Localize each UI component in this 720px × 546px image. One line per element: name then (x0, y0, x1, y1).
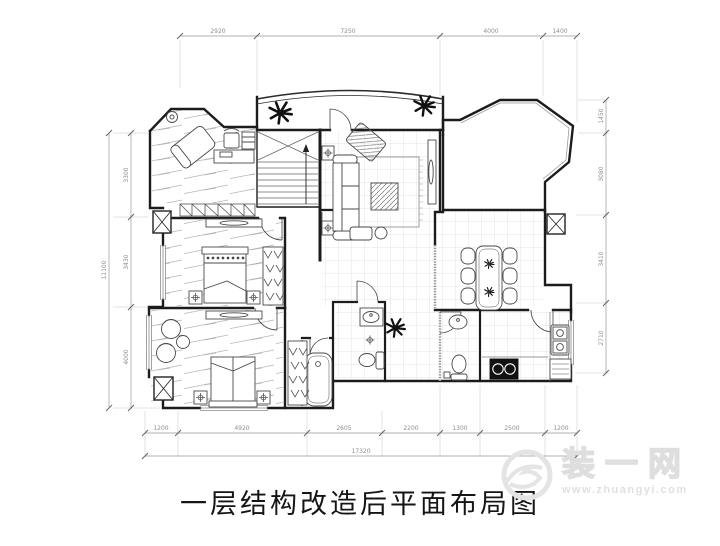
desk-chair (224, 133, 239, 148)
staircase (258, 132, 318, 204)
toilet (451, 355, 467, 380)
ottoman (350, 227, 372, 240)
entry-door (330, 109, 351, 130)
bathtub (305, 353, 332, 406)
watermark-brand: 装一网 (562, 446, 691, 482)
column-icon (154, 377, 173, 400)
plant-icon (414, 96, 434, 115)
sink (363, 312, 379, 323)
pouf (375, 227, 387, 239)
wardrobe (263, 247, 283, 305)
sink (449, 315, 467, 329)
double-sink (551, 325, 569, 355)
tv-shelf (206, 219, 262, 227)
bed (202, 247, 248, 303)
bed (209, 357, 257, 407)
floor-drain (444, 372, 450, 378)
watermark: 装一网 www.zhuangyi.com (498, 446, 713, 521)
stove (490, 359, 518, 379)
plan-title: 一层结构改造后平面布局图 (180, 482, 540, 521)
column-icon (547, 214, 565, 234)
dining-table (476, 246, 502, 310)
dim-top: 2920 7250 4000 1400 (177, 28, 580, 39)
dim-right: 1450 3080 3410 2710 (598, 97, 609, 376)
closet-shelf-row (180, 204, 255, 216)
dim-label: 3080 (598, 166, 605, 181)
dim-label: 2605 (336, 425, 351, 432)
round-table (177, 336, 190, 349)
dim-label: 1450 (598, 108, 605, 123)
dim-label: 3300 (123, 167, 130, 182)
terrace-window-inner-line (461, 103, 569, 179)
floor-plan-page: 2920 7250 4000 1400 1200 4920 2605 2200 … (0, 0, 720, 546)
dim-label: 2710 (598, 330, 605, 345)
dim-label: 2500 (504, 425, 519, 432)
cabinet (242, 132, 255, 149)
dim-label: 11100 (101, 260, 108, 279)
furniture-dining (461, 246, 517, 310)
tv-shelf (206, 311, 262, 319)
dim-label: 1400 (552, 28, 567, 35)
dim-label: 2920 (210, 28, 225, 35)
watermark-url: www.zhuangyi.com (562, 484, 691, 496)
dim-label: 4920 (234, 425, 249, 432)
watermark-logo-icon (498, 448, 556, 506)
dim-label: 1200 (553, 425, 568, 432)
dim-left: 3300 3430 4000 11100 (101, 130, 134, 411)
column-icon (153, 211, 171, 233)
plant-icon (270, 103, 292, 124)
dim-label: 4000 (123, 349, 130, 364)
dim-label: 3430 (123, 254, 130, 269)
dim-label: 3410 (598, 251, 605, 266)
fridge (550, 359, 571, 379)
dim-label: 1300 (452, 425, 467, 432)
dim-label: 2200 (403, 425, 418, 432)
dim-label: 4000 (483, 28, 498, 35)
coffee-table (371, 183, 398, 210)
dim-label: 17320 (351, 448, 370, 455)
dim-label: 1200 (153, 425, 168, 432)
stair-up-arrow-icon (303, 144, 309, 152)
dim-label: 7250 (340, 28, 355, 35)
